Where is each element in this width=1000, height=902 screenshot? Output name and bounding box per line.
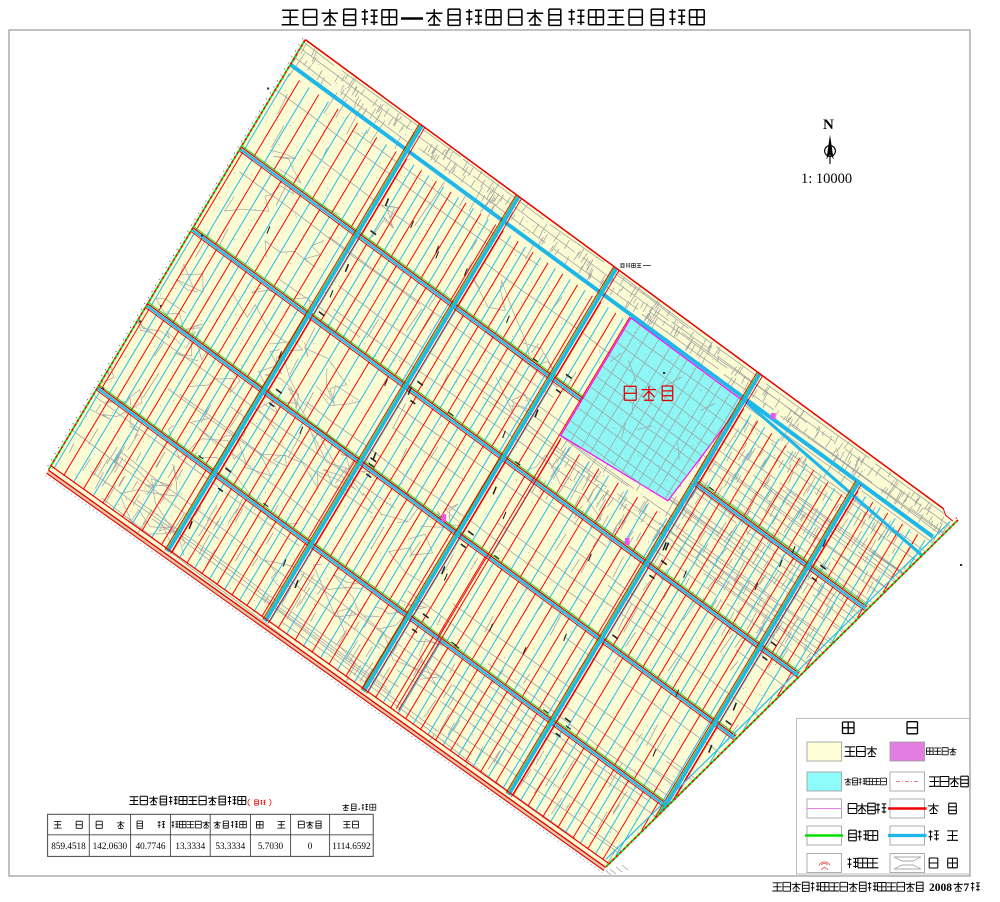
svg-text:7: 7 xyxy=(964,882,970,894)
svg-text:N: N xyxy=(823,117,834,133)
svg-text:2008: 2008 xyxy=(929,882,952,894)
svg-text:859.4518: 859.4518 xyxy=(51,841,86,851)
svg-text:40.7746: 40.7746 xyxy=(136,841,166,851)
svg-text:5.7030: 5.7030 xyxy=(258,841,284,851)
svg-text:0: 0 xyxy=(308,841,313,851)
svg-text:53.3334: 53.3334 xyxy=(215,841,245,851)
svg-text:1114.6592: 1114.6592 xyxy=(332,841,371,851)
svg-text:13.3334: 13.3334 xyxy=(175,841,205,851)
svg-text:1: 10000: 1: 10000 xyxy=(801,171,852,187)
svg-text:142.0630: 142.0630 xyxy=(93,841,128,851)
